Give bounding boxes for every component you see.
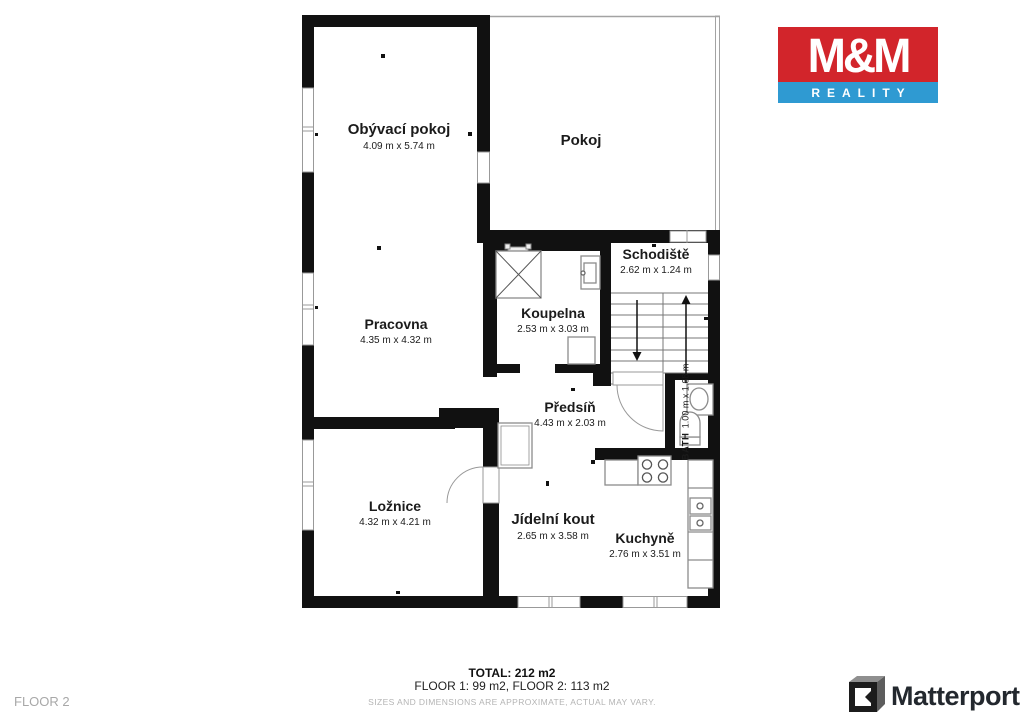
floor-plan <box>0 0 1024 724</box>
room-label-loznice: Ložnice 4.32 m x 4.21 m <box>359 498 431 529</box>
room-dims: 2.53 m x 3.03 m <box>517 324 589 337</box>
room-label-jidelni-kout: Jídelní kout 2.65 m x 3.58 m <box>511 511 594 543</box>
room-dims: 4.43 m x 2.03 m <box>534 418 606 431</box>
room-dims: 4.32 m x 4.21 m <box>359 517 431 530</box>
room-dims: 2.62 m x 1.24 m <box>620 265 692 278</box>
stove <box>638 456 671 485</box>
room-name: Jídelní kout <box>511 511 594 530</box>
pokoj-thin-walls <box>488 16 720 232</box>
mm-logo-blue-block: REALITY <box>778 82 938 103</box>
room-dims: 2.65 m x 3.58 m <box>511 531 594 544</box>
room-label-koupelna: Koupelna 2.53 m x 3.03 m <box>517 305 589 336</box>
washing-machine <box>568 337 595 364</box>
room-label-obyvaci-pokoj: Obývací pokoj 4.09 m x 5.74 m <box>348 121 451 153</box>
mm-reality-logo: M&M REALITY <box>778 27 938 103</box>
room-name: Obývací pokoj <box>348 121 451 140</box>
room-dims: 4.35 m x 4.32 m <box>360 335 432 348</box>
mm-reality-text: REALITY <box>804 86 911 100</box>
floor-label: FLOOR 2 <box>14 694 70 709</box>
room-name: BATH <box>680 433 691 461</box>
room-label-bath: BATH 1.00 m x 1.68 m <box>674 364 693 461</box>
room-name: Koupelna <box>517 305 589 323</box>
room-label-schodiste: Schodiště 2.62 m x 1.24 m <box>620 246 692 277</box>
koupelna-sink <box>581 256 600 289</box>
room-name: Pokoj <box>561 132 602 151</box>
room-label-pokoj: Pokoj <box>561 132 602 151</box>
mm-logo-red-block: M&M <box>778 27 938 82</box>
total-area-text: TOTAL: 212 m2 <box>0 666 1024 680</box>
door-stairhall-predsin <box>613 372 663 431</box>
mm-logo-text: M&M <box>808 26 909 83</box>
floor-areas-text: FLOOR 1: 99 m2, FLOOR 2: 113 m2 <box>0 679 1024 693</box>
room-label-pracovna: Pracovna 4.35 m x 4.32 m <box>360 316 432 347</box>
hall-cabinet <box>498 423 532 468</box>
room-dims: 2.76 m x 3.51 m <box>609 549 681 562</box>
room-name: Kuchyně <box>609 530 681 548</box>
room-label-kuchyne: Kuchyně 2.76 m x 3.51 m <box>609 530 681 561</box>
room-name: Schodiště <box>620 246 692 264</box>
room-name: Ložnice <box>359 498 431 516</box>
room-name: Pracovna <box>360 316 432 334</box>
kitchen-sink <box>690 498 711 530</box>
room-label-predsin: Předsíň 4.43 m x 2.03 m <box>534 399 606 430</box>
door-loznice <box>447 467 499 503</box>
shower <box>496 251 541 298</box>
room-dims: 4.09 m x 5.74 m <box>348 141 451 154</box>
disclaimer-text: SIZES AND DIMENSIONS ARE APPROXIMATE, AC… <box>0 697 1024 707</box>
room-name: Předsíň <box>534 399 606 417</box>
room-dims: 1.00 m x 1.68 m <box>680 364 690 429</box>
floorplan-page: Obývací pokoj 4.09 m x 5.74 m Pokoj Scho… <box>0 0 1024 724</box>
